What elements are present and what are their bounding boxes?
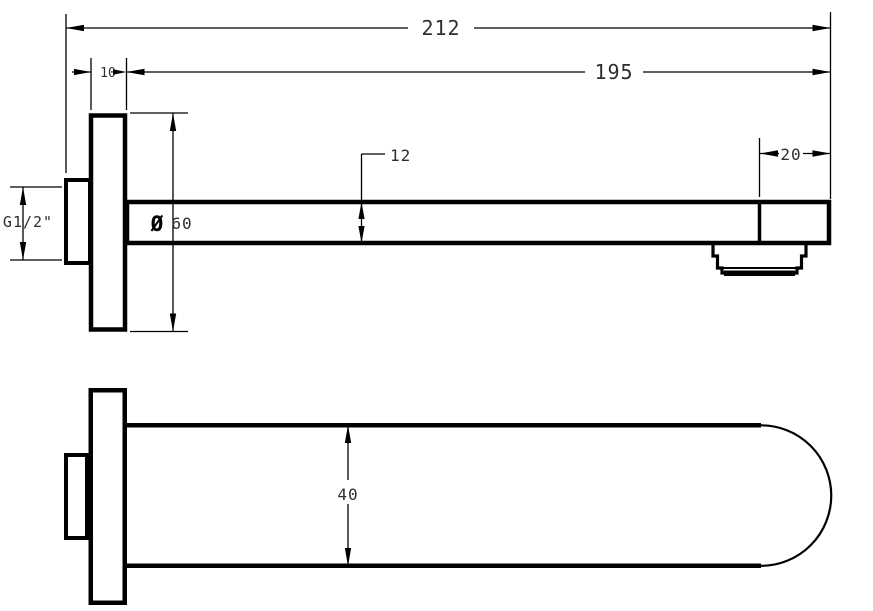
arrowhead-left xyxy=(66,25,84,31)
side-inlet-nipple-outline xyxy=(66,180,90,263)
dim-spout-width-label: 40 xyxy=(337,485,358,504)
dim-flange-thickness: 10 xyxy=(72,66,127,81)
arrowhead-left xyxy=(127,69,145,75)
dim-spout-width: 40 xyxy=(334,425,362,566)
dim-end-section: 20 xyxy=(760,145,831,164)
arrowhead-down xyxy=(358,226,364,243)
dim-end-section-label: 20 xyxy=(780,145,801,164)
arrowhead-inward-left xyxy=(74,69,91,75)
arrowhead-inward-right xyxy=(113,69,127,74)
side-spout-body-outline xyxy=(127,202,829,243)
arrowhead-down xyxy=(170,314,176,332)
plan-wall-flange-outline xyxy=(91,390,125,603)
plan-view: 40 xyxy=(66,390,831,603)
arrowhead-up xyxy=(20,187,26,205)
arrowhead-up xyxy=(345,425,351,443)
diameter-symbol: Ø xyxy=(150,212,164,236)
side-wall-flange-outline xyxy=(91,116,125,330)
dim-projection-label: 195 xyxy=(594,60,633,84)
plan-inlet-nipple-outline xyxy=(66,455,87,538)
dim-spout-height: 12 xyxy=(358,146,411,243)
dim-flange-diameter-label: 60 xyxy=(171,214,192,233)
arrowhead-down xyxy=(345,548,351,566)
arrowhead-right xyxy=(813,25,831,31)
dim-inlet-thread: G1/2" xyxy=(3,187,62,260)
arrowhead-up xyxy=(358,202,364,219)
arrowhead-left xyxy=(760,150,778,156)
dim-spout-height-label: 12 xyxy=(390,146,411,165)
arrowhead-right xyxy=(813,69,831,75)
plan-spout-rounded-tip xyxy=(761,425,831,566)
arrowhead-right xyxy=(813,150,831,156)
arrowhead-down xyxy=(20,242,26,260)
dim-total-length: 212 xyxy=(66,16,831,40)
drawing-canvas: 212 195 10 12 xyxy=(0,0,873,611)
dim-projection-length: 195 xyxy=(127,60,831,84)
dim-flange-diameter: Ø 60 xyxy=(130,113,193,332)
aerator xyxy=(713,245,806,276)
technical-drawing-svg: 212 195 10 12 xyxy=(0,0,873,611)
aerator-bottom-ring xyxy=(724,271,795,277)
side-view: 212 195 10 12 xyxy=(3,12,831,332)
dim-inlet-thread-label: G1/2" xyxy=(3,213,53,231)
arrowhead-up xyxy=(170,113,176,131)
dim-total-length-label: 212 xyxy=(421,16,460,40)
